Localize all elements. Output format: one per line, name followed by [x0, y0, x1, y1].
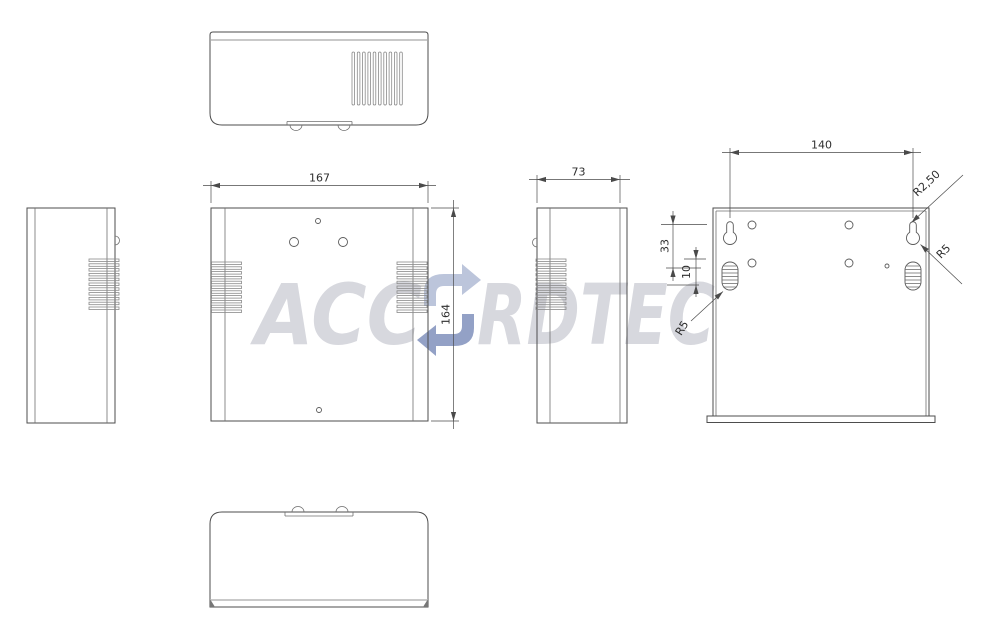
vent-slots — [352, 52, 402, 105]
vent-louvers-left — [212, 262, 242, 313]
watermark-text-prefix: ACC — [250, 266, 422, 364]
logo-arrow-top — [424, 264, 481, 306]
left-side-view — [27, 208, 120, 423]
drawing-canvas: ACC RDTEC — [0, 0, 1000, 622]
mount-tab — [290, 125, 302, 131]
dim-label-keyhole-offset: 33 — [659, 239, 672, 253]
side-tab — [533, 238, 538, 247]
leader-keyhole-radius: R5 — [919, 242, 962, 284]
oval-vent-left — [722, 262, 738, 290]
dim-label-hole-spacing: 140 — [811, 139, 832, 152]
hole — [845, 259, 853, 267]
bottom-view — [210, 507, 428, 608]
dim-front-height: 164 — [431, 200, 459, 429]
watermark: ACC RDTEC — [250, 264, 715, 364]
keyhole-slot-left — [724, 222, 737, 245]
dim-label-front-height: 164 — [440, 304, 453, 325]
dim-front-width: 167 — [203, 172, 436, 204]
top-view — [210, 32, 428, 131]
bottom-flange — [707, 416, 935, 423]
hole — [845, 221, 853, 229]
dim-back-hole-spacing: 140 — [722, 139, 921, 219]
dim-label-front-width: 167 — [309, 172, 330, 185]
dim-label-keyhole-radius: R5 — [934, 242, 954, 262]
dim-label-keyhole-slot-radius: R2,50 — [910, 168, 942, 199]
mount-tab — [338, 125, 350, 131]
leader-keyhole-slot-radius: R2,50 — [910, 168, 963, 225]
keyhole-slot-right — [907, 222, 920, 245]
hole — [748, 259, 756, 267]
oval-vent-right — [905, 262, 921, 290]
dim-label-side-depth: 73 — [572, 166, 586, 179]
mount-tab — [292, 507, 304, 513]
hole — [339, 238, 348, 247]
screw-hole — [317, 408, 322, 413]
technical-drawing-page: ACC RDTEC — [0, 0, 1000, 622]
dim-side-depth: 73 — [529, 166, 630, 204]
dim-label-vent-offset: 10 — [680, 265, 693, 279]
mount-tab — [336, 507, 348, 513]
screw-hole — [316, 219, 321, 224]
side-tab — [115, 236, 120, 245]
watermark-text-suffix: RDTEC — [477, 266, 715, 364]
small-hole — [885, 264, 889, 268]
hole — [290, 238, 299, 247]
hole — [748, 221, 756, 229]
